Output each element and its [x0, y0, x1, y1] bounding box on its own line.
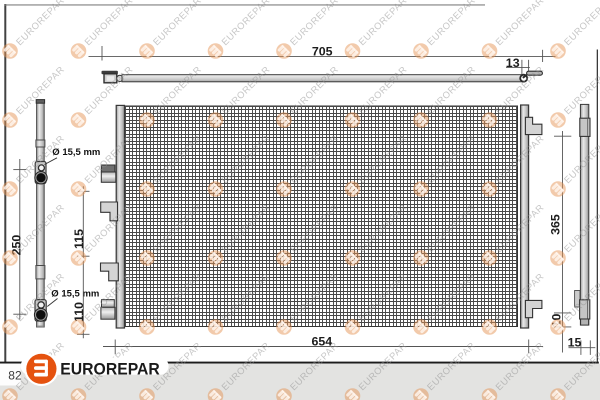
svg-text:Ø 15,5 mm: Ø 15,5 mm	[52, 147, 100, 158]
svg-text:EUROREPAR: EUROREPAR	[493, 0, 546, 47]
svg-text:15: 15	[568, 335, 582, 349]
svg-text:EUROREPAR: EUROREPAR	[82, 0, 135, 47]
svg-text:13: 13	[506, 56, 520, 70]
svg-text:Ø 15,5 mm: Ø 15,5 mm	[51, 289, 99, 300]
svg-text:EUROREPAR: EUROREPAR	[14, 0, 67, 47]
svg-text:EUROREPAR: EUROREPAR	[356, 0, 409, 47]
svg-text:EUROREPAR: EUROREPAR	[562, 0, 600, 47]
svg-text:EUROREPAR: EUROREPAR	[493, 64, 546, 117]
svg-text:EUROREPAR: EUROREPAR	[219, 0, 272, 47]
svg-text:EUROREPAR: EUROREPAR	[288, 0, 341, 47]
svg-text:705: 705	[312, 45, 333, 59]
svg-text:365: 365	[549, 214, 563, 235]
svg-text:EUROREPAR: EUROREPAR	[60, 359, 160, 378]
svg-text:EUROREPAR: EUROREPAR	[425, 0, 478, 47]
svg-text:EUROREPAR: EUROREPAR	[151, 0, 204, 47]
svg-text:110: 110	[72, 302, 86, 322]
